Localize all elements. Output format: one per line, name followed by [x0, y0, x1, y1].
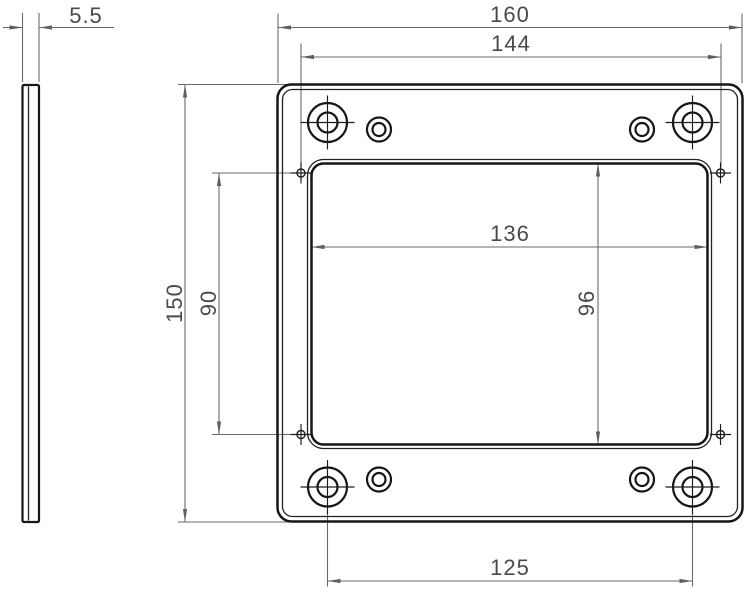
side-view-outline [23, 85, 40, 522]
dim-bottom-hole-spacing: 125 [328, 512, 693, 587]
dim-overall-height: 150 [162, 85, 296, 523]
ring-inner-circle [636, 473, 649, 486]
dim-window-width: 136 [312, 221, 708, 247]
ring-inner-circle [373, 123, 386, 136]
dim-text-hole-grid-width: 144 [491, 31, 531, 56]
dim-window-height: 96 [574, 164, 599, 445]
counterbore-hole-bottom-left [301, 460, 355, 514]
dim-text-overall-width: 160 [490, 2, 530, 27]
pilot-hole-top-right [710, 163, 731, 184]
ring-inner-circle [373, 473, 386, 486]
pilot-hole-top-left [291, 163, 312, 184]
plate-outline [278, 85, 743, 522]
dim-hole-grid-width: 144 [301, 31, 721, 168]
dim-text-overall-height: 150 [162, 283, 187, 323]
ring-hole-top-right [630, 118, 654, 142]
front-view [278, 85, 743, 522]
dim-text-window-height: 96 [574, 290, 599, 316]
window-outline [312, 164, 708, 445]
pilot-hole-bottom-right [710, 424, 731, 445]
side-view [23, 85, 40, 522]
window-chamfer-line [308, 160, 712, 449]
ring-hole-bottom-right [630, 468, 654, 492]
dim-text-bottom-hole-spacing: 125 [490, 555, 530, 580]
pilot-hole-bottom-left [291, 424, 312, 445]
counterbore-hole-top-right [666, 96, 720, 150]
ring-outer-circle [367, 118, 391, 142]
dim-thickness: 5.5 [3, 3, 114, 82]
ring-hole-bottom-left [367, 468, 391, 492]
drawing-canvas: 5.5 160 144 136 150 90 96 [0, 0, 750, 594]
ring-outer-circle [367, 468, 391, 492]
technical-drawing: 5.5 160 144 136 150 90 96 [0, 0, 750, 594]
dim-text-pilot-grid-height: 90 [196, 290, 221, 316]
dim-pilot-grid-height: 90 [196, 173, 295, 435]
counterbore-hole-top-left [301, 96, 355, 150]
dim-text-window-width: 136 [490, 221, 530, 246]
counterbore-hole-bottom-right [666, 460, 720, 514]
ring-hole-top-left [367, 118, 391, 142]
plate-chamfer-line [283, 90, 738, 517]
ring-inner-circle [636, 123, 649, 136]
dim-text-thickness: 5.5 [69, 3, 103, 28]
ring-outer-circle [630, 118, 654, 142]
ring-outer-circle [630, 468, 654, 492]
